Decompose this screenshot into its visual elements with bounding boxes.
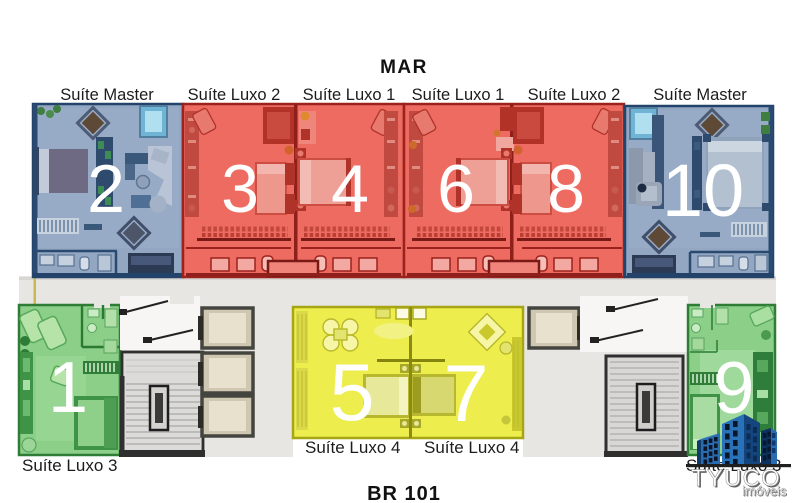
svg-text:Suíte Luxo 1: Suíte Luxo 1 <box>303 86 396 104</box>
svg-text:Suíte Luxo 2: Suíte Luxo 2 <box>188 86 281 104</box>
svg-text:MAR: MAR <box>380 57 428 78</box>
svg-text:10: 10 <box>662 149 744 232</box>
svg-text:Suíte Master: Suíte Master <box>653 86 747 104</box>
svg-text:Suíte Luxo 2: Suíte Luxo 2 <box>528 86 621 104</box>
svg-text:BR 101: BR 101 <box>367 483 441 503</box>
svg-text:Suíte Luxo 4: Suíte Luxo 4 <box>424 438 519 457</box>
svg-text:3: 3 <box>221 151 259 227</box>
svg-text:4: 4 <box>331 151 369 227</box>
svg-text:Suíte Master: Suíte Master <box>60 86 154 104</box>
svg-text:7: 7 <box>443 349 488 439</box>
svg-text:Suíte Luxo 3: Suíte Luxo 3 <box>22 456 117 475</box>
svg-text:Suíte Luxo 1: Suíte Luxo 1 <box>412 86 505 104</box>
svg-text:5: 5 <box>329 348 374 438</box>
svg-text:6: 6 <box>437 151 475 227</box>
svg-text:8: 8 <box>547 151 585 227</box>
svg-text:imóveis: imóveis <box>742 484 787 499</box>
svg-text:1: 1 <box>48 348 88 428</box>
svg-text:Suíte Luxo 4: Suíte Luxo 4 <box>305 438 400 457</box>
svg-text:2: 2 <box>87 151 125 227</box>
